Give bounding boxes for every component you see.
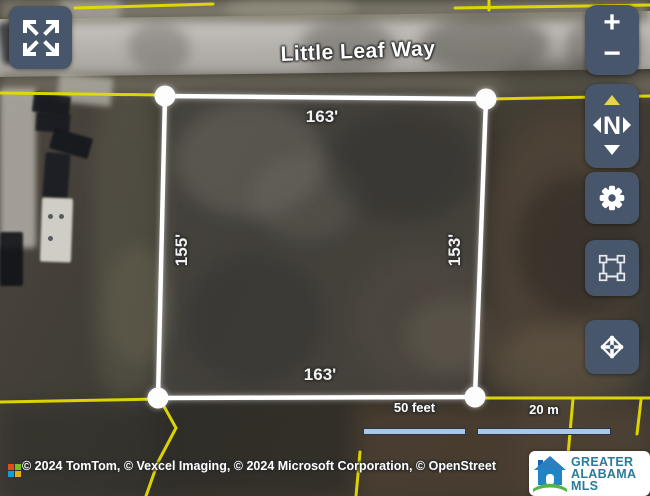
vertex-handle[interactable] [155,86,176,107]
vertex-handle[interactable] [476,89,497,110]
mls-logo-line2: ALABAMA [571,468,636,480]
pan-west-arrow-icon[interactable] [593,117,601,133]
compass-pan-control[interactable]: N [585,84,639,168]
parcel-dimension-right: 153' [445,215,465,285]
pan-south-arrow-icon[interactable] [604,145,620,155]
draw-polygon-button[interactable] [585,240,639,296]
settings-button[interactable] [585,172,639,224]
vertex-handle[interactable] [148,388,169,409]
parcel-dimension-top: 163' [287,107,357,127]
greater-alabama-mls-logo: GREATER ALABAMA MLS [529,451,650,496]
scale-bar-feet [363,428,466,435]
zoom-out-button[interactable]: − [585,38,639,69]
mls-logo-line1: GREATER [571,456,636,468]
scale-feet-label: 50 feet [363,400,466,415]
map-attribution: © 2024 TomTom, © Vexcel Imaging, © 2024 … [22,459,528,473]
pan-north-arrow-icon[interactable] [604,95,620,105]
zoom-in-button[interactable]: + [585,7,639,38]
parcel-overlay [0,0,650,496]
mls-logo-line3: MLS [571,480,636,492]
map-viewport[interactable]: Little Leaf Way 163' 163' 155' 153' + − … [0,0,650,496]
gear-icon [592,178,632,218]
pan-east-arrow-icon[interactable] [623,117,631,133]
mls-house-icon [532,455,568,493]
crosshair-icon [590,325,634,369]
parcel-dimension-bottom: 163' [285,365,355,385]
fullscreen-button[interactable] [9,6,72,69]
microsoft-logo-icon [8,464,21,477]
scale-meters-label: 20 m [477,402,611,417]
polygon-select-icon [590,246,634,290]
parcel-dimension-left: 155' [172,215,192,285]
scale-bar-meters [477,428,611,435]
compass-north-label: N [603,112,621,140]
zoom-control: + − [585,5,639,75]
recenter-button[interactable] [585,320,639,374]
expand-arrows-icon [20,17,62,59]
